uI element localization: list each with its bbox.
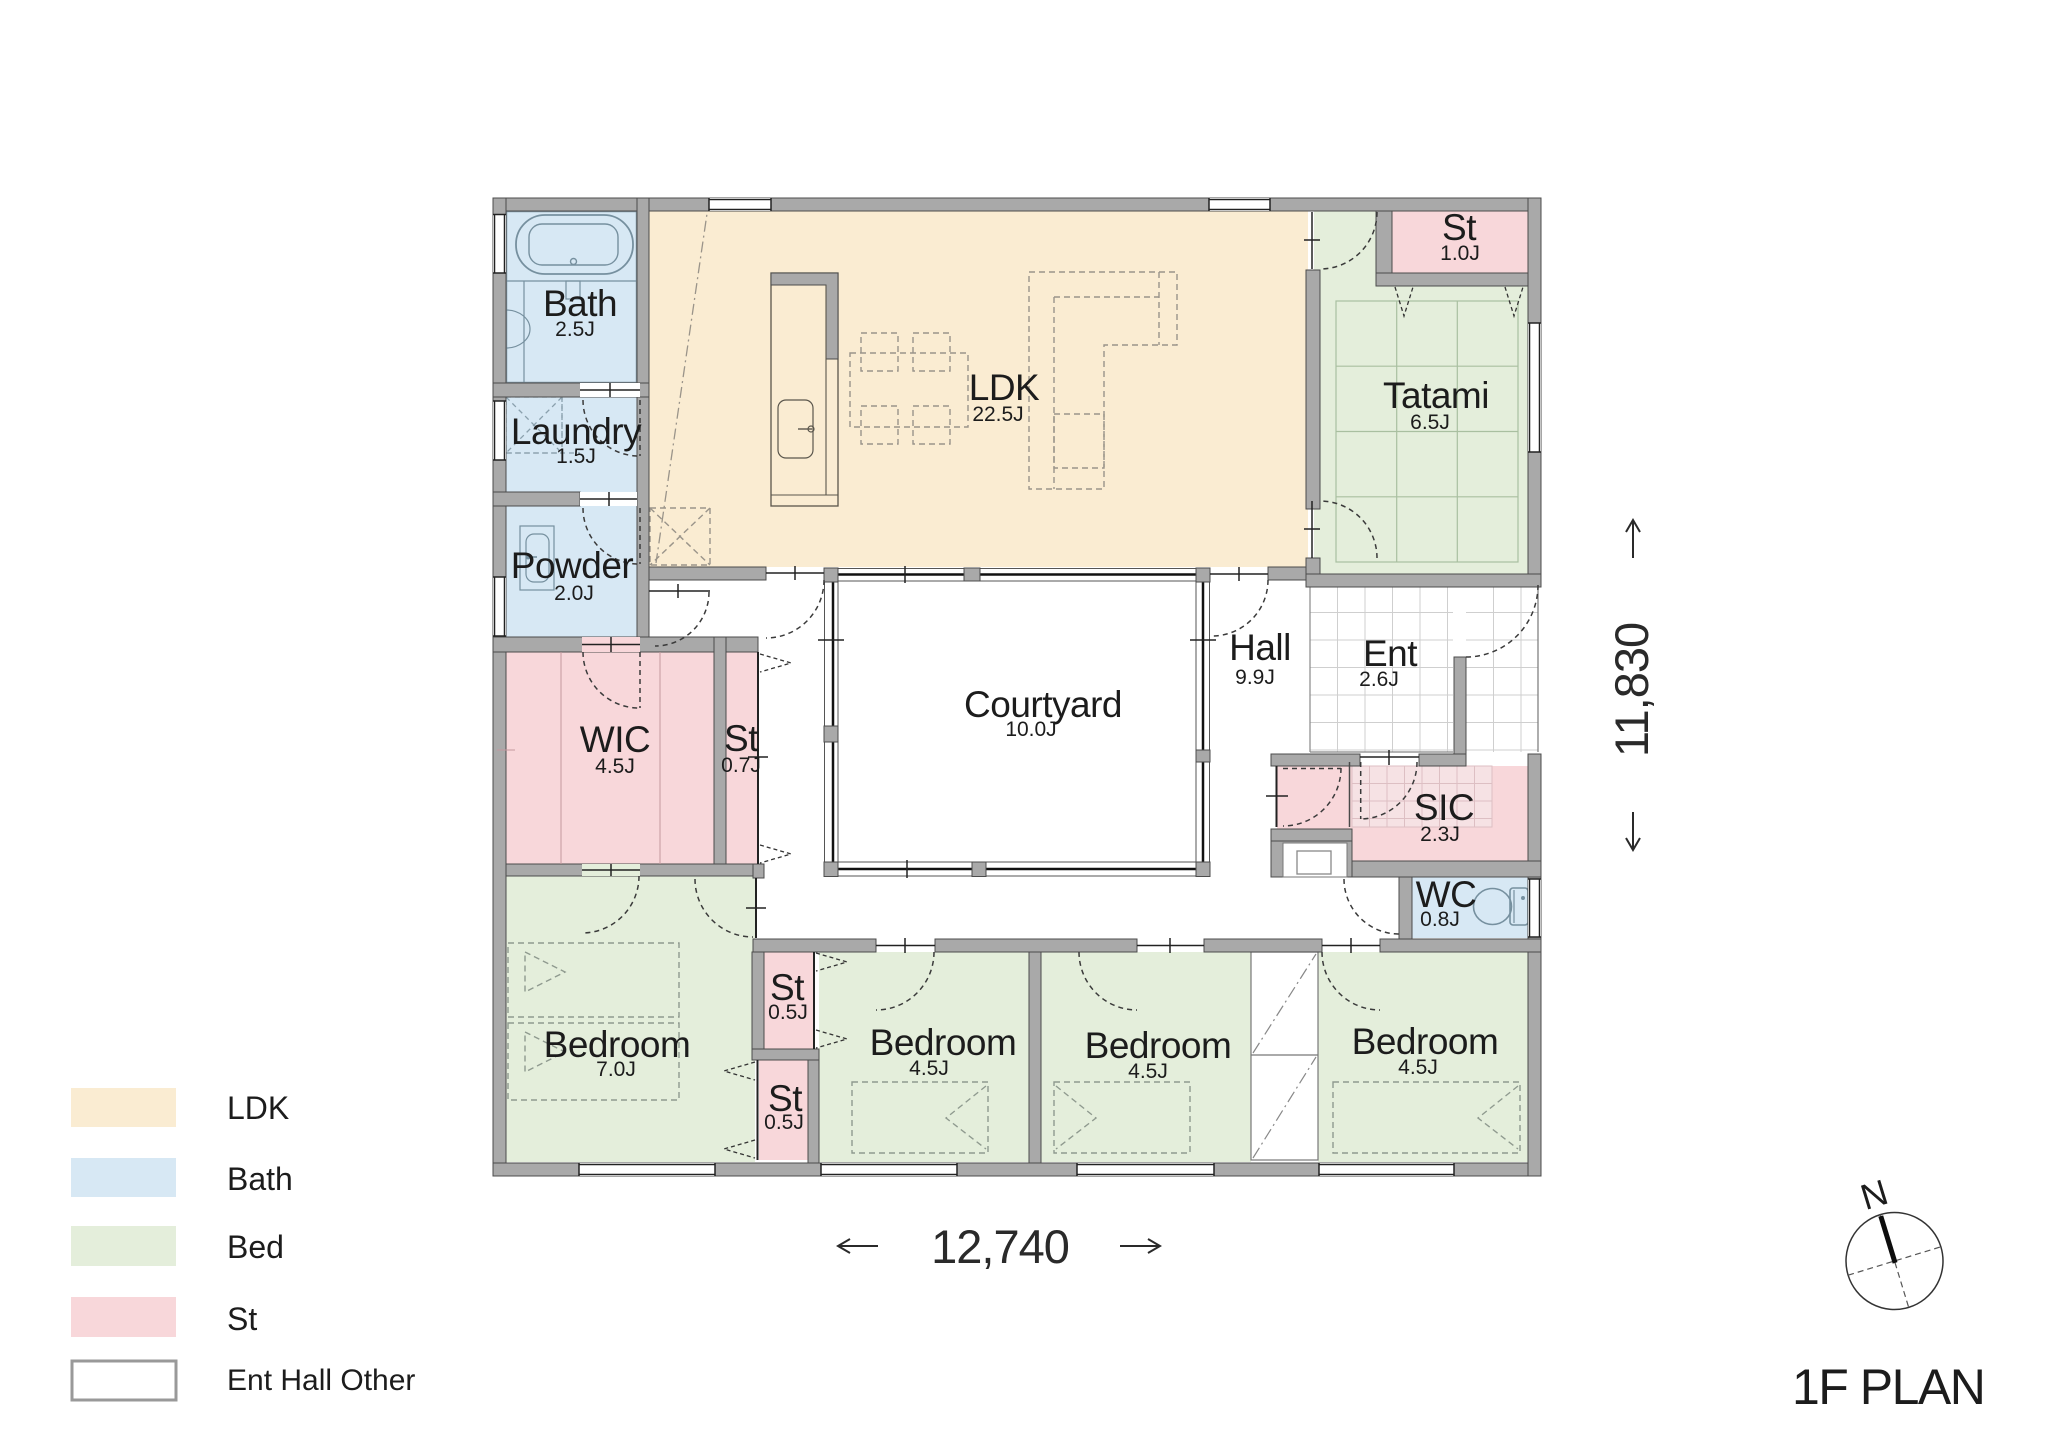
svg-text:6.5J: 6.5J [1410, 411, 1450, 434]
svg-text:Powder: Powder [511, 545, 634, 586]
svg-text:0.5J: 0.5J [764, 1111, 804, 1134]
svg-text:4.5J: 4.5J [1398, 1056, 1438, 1079]
svg-text:St: St [724, 718, 759, 759]
svg-text:1.5J: 1.5J [556, 445, 596, 468]
svg-text:St: St [227, 1301, 257, 1337]
svg-text:Tatami: Tatami [1383, 375, 1489, 416]
svg-text:2.3J: 2.3J [1420, 823, 1460, 846]
svg-text:2.5J: 2.5J [555, 318, 595, 341]
svg-text:4.5J: 4.5J [909, 1057, 949, 1080]
svg-text:Bed: Bed [227, 1229, 284, 1265]
svg-text:4.5J: 4.5J [595, 755, 635, 778]
svg-text:1.0J: 1.0J [1440, 242, 1480, 265]
svg-text:LDK: LDK [969, 367, 1040, 408]
svg-text:2.0J: 2.0J [554, 582, 594, 605]
svg-text:12,740: 12,740 [931, 1220, 1069, 1273]
svg-text:Hall: Hall [1229, 627, 1291, 668]
svg-text:7.0J: 7.0J [596, 1058, 636, 1081]
svg-text:1F PLAN: 1F PLAN [1792, 1359, 1984, 1415]
svg-text:22.5J: 22.5J [972, 403, 1023, 426]
svg-text:WIC: WIC [580, 719, 650, 760]
svg-text:2.6J: 2.6J [1359, 668, 1399, 691]
svg-text:Bath: Bath [227, 1161, 293, 1197]
svg-text:0.5J: 0.5J [768, 1001, 808, 1024]
svg-text:0.7J: 0.7J [721, 754, 761, 777]
svg-text:10.0J: 10.0J [1005, 718, 1056, 741]
svg-text:SIC: SIC [1414, 787, 1474, 828]
svg-text:9.9J: 9.9J [1235, 666, 1275, 689]
svg-text:4.5J: 4.5J [1128, 1060, 1168, 1083]
svg-text:11,830: 11,830 [1605, 623, 1658, 757]
svg-text:Ent Hall Other: Ent Hall Other [227, 1364, 415, 1397]
svg-text:LDK: LDK [227, 1090, 289, 1126]
svg-text:0.8J: 0.8J [1420, 908, 1460, 931]
